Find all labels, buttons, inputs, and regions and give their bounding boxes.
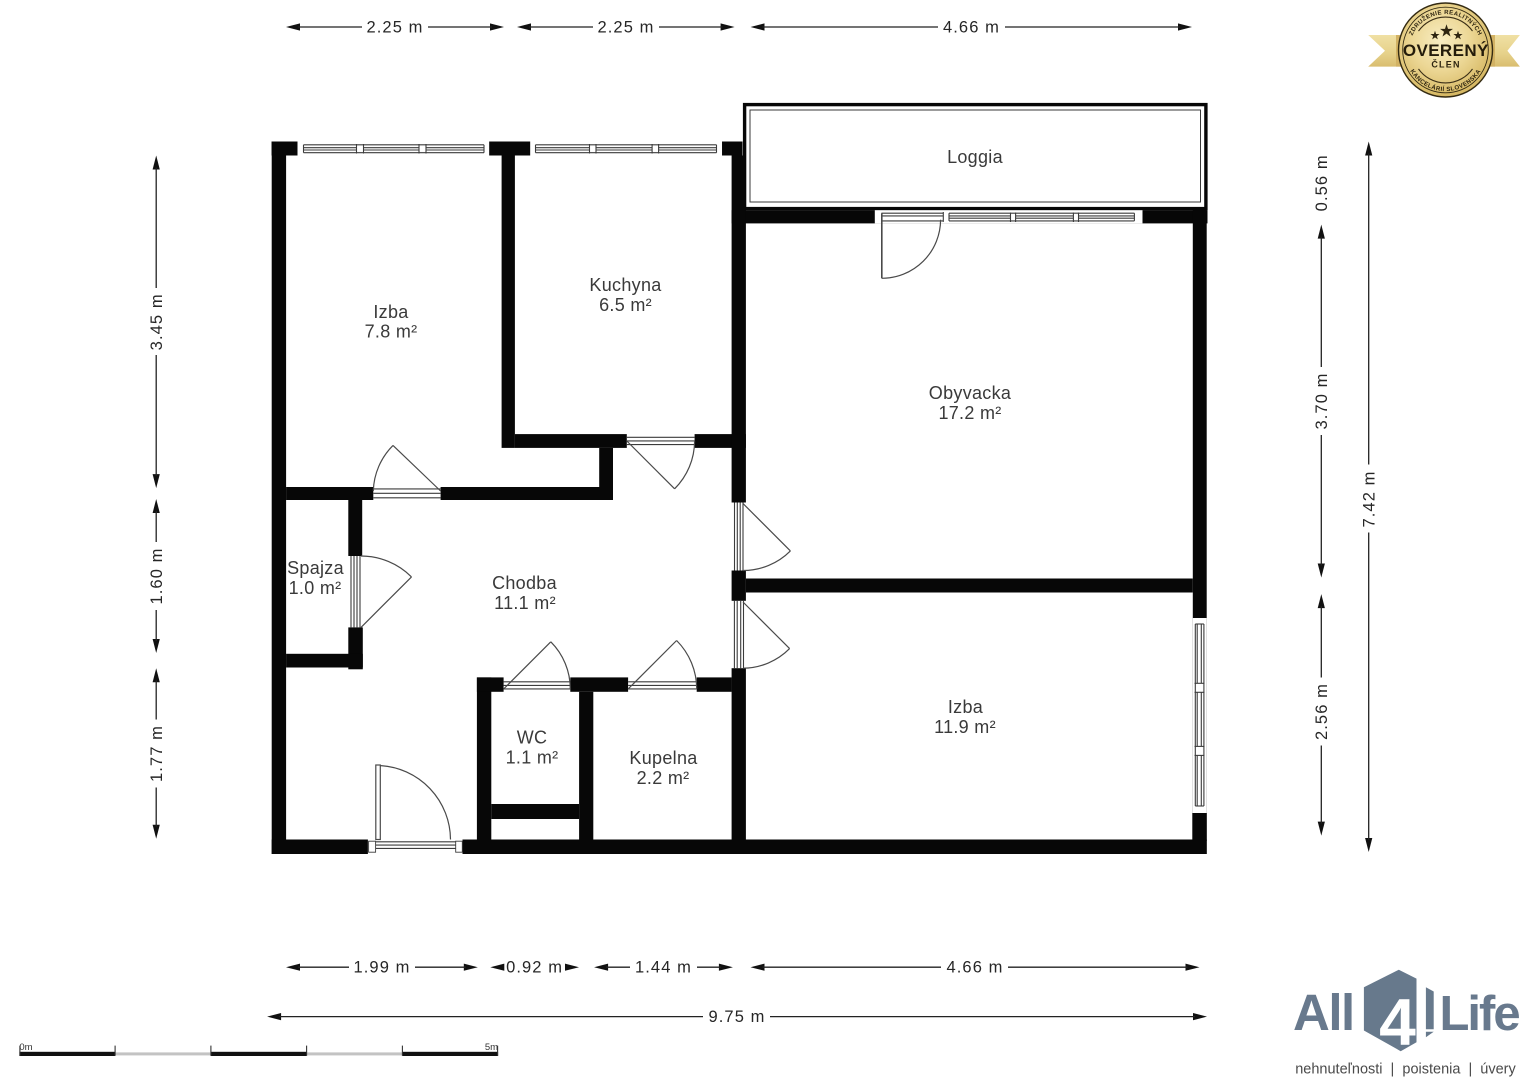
svg-text:17.2 m²: 17.2 m² — [938, 403, 1001, 423]
svg-text:Chodba: Chodba — [492, 573, 558, 593]
svg-text:1.77 m: 1.77 m — [148, 725, 166, 782]
svg-text:3.45 m: 3.45 m — [148, 293, 166, 350]
svg-text:3.70 m: 3.70 m — [1313, 372, 1331, 429]
svg-text:1.0 m²: 1.0 m² — [289, 578, 342, 598]
svg-text:Obyvacka: Obyvacka — [929, 383, 1012, 403]
svg-text:6.5 m²: 6.5 m² — [599, 295, 652, 315]
svg-text:OVERENÝ: OVERENÝ — [1403, 41, 1489, 60]
svg-text:11.9 m²: 11.9 m² — [934, 717, 996, 737]
svg-text:Kuchyna: Kuchyna — [589, 275, 662, 295]
svg-text:Loggia: Loggia — [947, 147, 1004, 167]
svg-text:1.60 m: 1.60 m — [148, 547, 166, 604]
svg-text:0m: 0m — [19, 1042, 32, 1053]
svg-text:2.2 m²: 2.2 m² — [637, 768, 690, 788]
svg-text:0.56 m: 0.56 m — [1313, 154, 1331, 211]
svg-text:4.66 m: 4.66 m — [946, 959, 1003, 977]
svg-text:nehnuteľnosti | poistenia |: nehnuteľnosti | poistenia | úvery — [1295, 1062, 1516, 1078]
svg-text:All: All — [1293, 984, 1354, 1041]
svg-text:Life: Life — [1440, 987, 1520, 1041]
svg-text:7.8 m²: 7.8 m² — [365, 322, 418, 342]
svg-text:Kupelna: Kupelna — [629, 748, 698, 768]
svg-text:Spajza: Spajza — [287, 558, 345, 578]
svg-text:9.75 m: 9.75 m — [708, 1008, 765, 1026]
svg-text:1.44 m: 1.44 m — [635, 959, 692, 977]
svg-text:2.25 m: 2.25 m — [597, 19, 654, 37]
svg-text:7.42 m: 7.42 m — [1360, 470, 1378, 527]
svg-text:Izba: Izba — [948, 697, 984, 717]
svg-text:4.66 m: 4.66 m — [943, 19, 1000, 37]
svg-text:11.1 m²: 11.1 m² — [494, 593, 556, 613]
svg-text:Izba: Izba — [373, 302, 409, 322]
svg-text:0.92 m: 0.92 m — [506, 959, 563, 977]
svg-text:5m: 5m — [485, 1042, 498, 1053]
svg-text:4: 4 — [1379, 985, 1416, 1059]
svg-text:ČLEN: ČLEN — [1431, 59, 1460, 70]
svg-text:1.1 m²: 1.1 m² — [506, 748, 559, 768]
svg-text:2.56 m: 2.56 m — [1313, 683, 1331, 740]
svg-text:WC: WC — [517, 728, 548, 748]
svg-text:2.25 m: 2.25 m — [366, 19, 423, 37]
svg-text:1.99 m: 1.99 m — [353, 959, 410, 977]
